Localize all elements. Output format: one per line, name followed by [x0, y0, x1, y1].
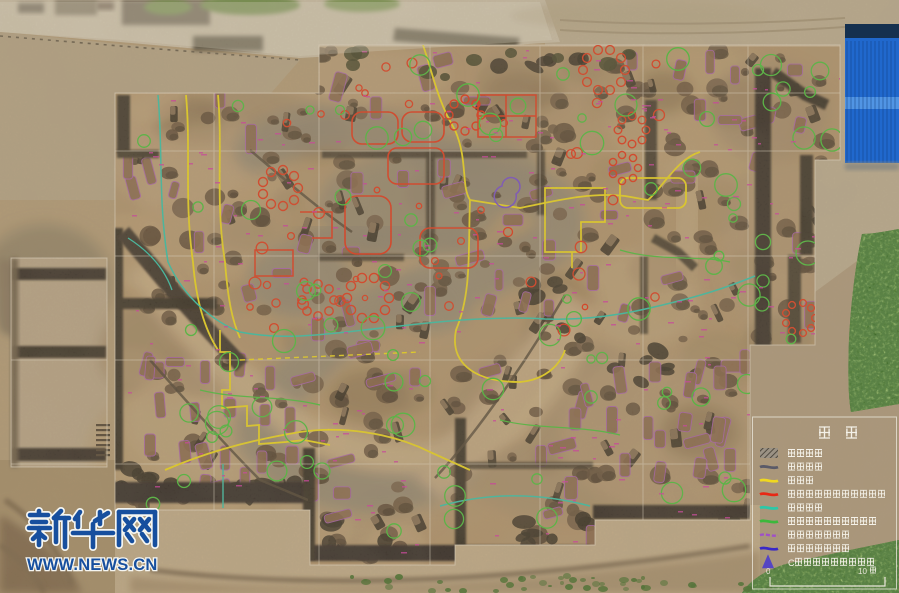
svg-text:0: 0: [766, 567, 771, 576]
svg-text:C: C: [788, 558, 795, 568]
svg-text:10: 10: [858, 567, 867, 576]
svg-text:WWW.NEWS.CN: WWW.NEWS.CN: [27, 556, 158, 574]
